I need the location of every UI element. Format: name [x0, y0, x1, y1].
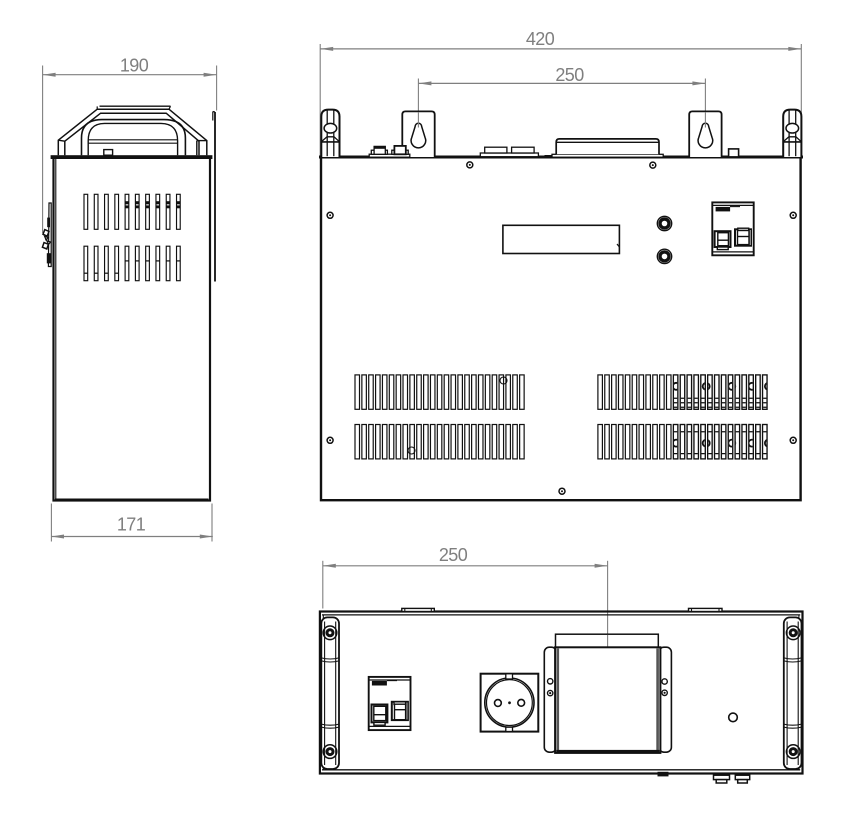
svg-text:250: 250 — [555, 65, 584, 85]
svg-text:171: 171 — [117, 515, 146, 535]
svg-text:190: 190 — [120, 56, 149, 76]
svg-text:250: 250 — [439, 545, 468, 565]
svg-text:420: 420 — [526, 29, 555, 49]
